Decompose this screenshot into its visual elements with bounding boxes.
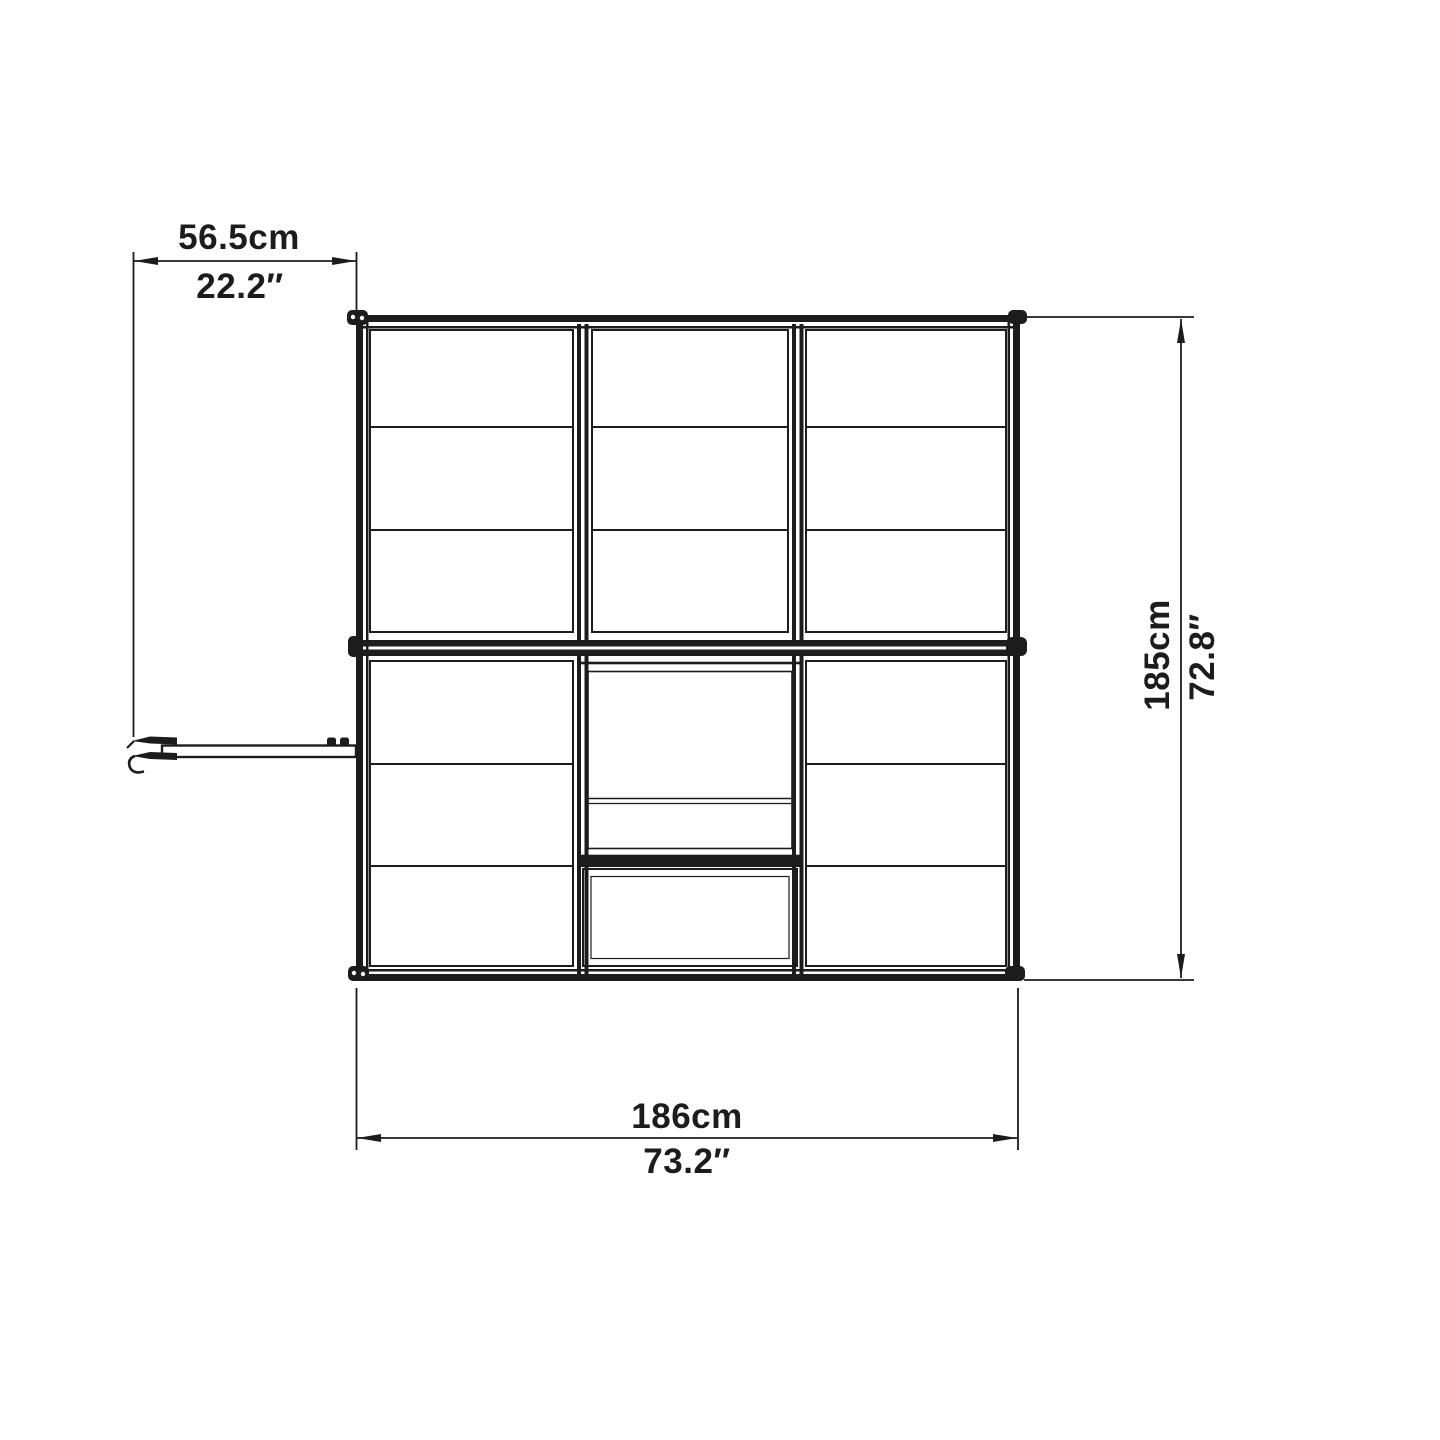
ridge-bar-lower bbox=[356, 650, 1020, 657]
door-handle-lower bbox=[132, 752, 177, 760]
frame-bar-bottom bbox=[356, 974, 1020, 981]
mullion bbox=[800, 324, 804, 640]
rivet bbox=[361, 972, 365, 976]
arrowhead bbox=[1177, 319, 1185, 343]
dim-label-depth-imperial: 72.8″ bbox=[1183, 613, 1223, 700]
rivet bbox=[352, 971, 356, 975]
dim-label-width-imperial: 73.2″ bbox=[643, 1142, 730, 1182]
arrowhead bbox=[134, 257, 158, 265]
mullion bbox=[792, 324, 796, 640]
door-handle-hook bbox=[129, 756, 144, 773]
dim-label-width-metric: 186cm bbox=[631, 1097, 742, 1137]
ridge-connector bbox=[1006, 637, 1027, 656]
corner-connector bbox=[1005, 966, 1025, 981]
vent-sill-bar bbox=[577, 856, 803, 867]
door-slab bbox=[162, 746, 356, 758]
arrowhead bbox=[332, 257, 356, 265]
arrowhead bbox=[1177, 954, 1185, 978]
mullion bbox=[577, 656, 581, 974]
frame-bar-top bbox=[356, 315, 1020, 322]
glazing-panel bbox=[370, 330, 573, 632]
door-hinge bbox=[327, 738, 336, 747]
mullion bbox=[577, 324, 581, 640]
mullion bbox=[585, 324, 589, 640]
dim-label-door-imperial: 22.2″ bbox=[196, 267, 283, 307]
arrowhead bbox=[993, 1134, 1017, 1142]
door-hinge bbox=[340, 738, 349, 747]
roof-vent-window bbox=[577, 663, 803, 966]
glazing-panel bbox=[806, 661, 1006, 966]
dim-label-depth-metric: 185cm bbox=[1138, 599, 1178, 710]
arrowhead bbox=[357, 1134, 381, 1142]
dim-label-door-metric: 56.5cm bbox=[178, 218, 300, 258]
door-open-assembly bbox=[127, 737, 356, 773]
door-handle-upper bbox=[132, 737, 177, 745]
ridge-bar-upper bbox=[356, 640, 1020, 647]
diagram-canvas: 56.5cm 22.2″ 185cm 72.8″ 186cm 73.2″ bbox=[0, 0, 1440, 1440]
greenhouse-diagram bbox=[0, 0, 1440, 1440]
lower-centre-panel bbox=[583, 869, 797, 966]
rivet bbox=[351, 315, 355, 319]
mullion bbox=[800, 656, 804, 974]
mullion bbox=[792, 656, 796, 974]
ridge-connector bbox=[348, 636, 363, 657]
mullion bbox=[585, 656, 589, 974]
frame-bar-top-inner bbox=[356, 326, 1020, 329]
glazing-panel bbox=[806, 330, 1006, 632]
corner-connector bbox=[348, 966, 369, 981]
glazing-panel bbox=[592, 330, 788, 632]
vent-frame-outer bbox=[579, 663, 801, 856]
door-handle-tail bbox=[127, 741, 134, 748]
frame-bar-bottom-inner bbox=[356, 969, 1020, 972]
glazing-panel bbox=[370, 661, 573, 966]
corner-connector bbox=[347, 310, 368, 325]
frame-bar-left-inner bbox=[366, 315, 369, 981]
rivet bbox=[360, 316, 364, 320]
